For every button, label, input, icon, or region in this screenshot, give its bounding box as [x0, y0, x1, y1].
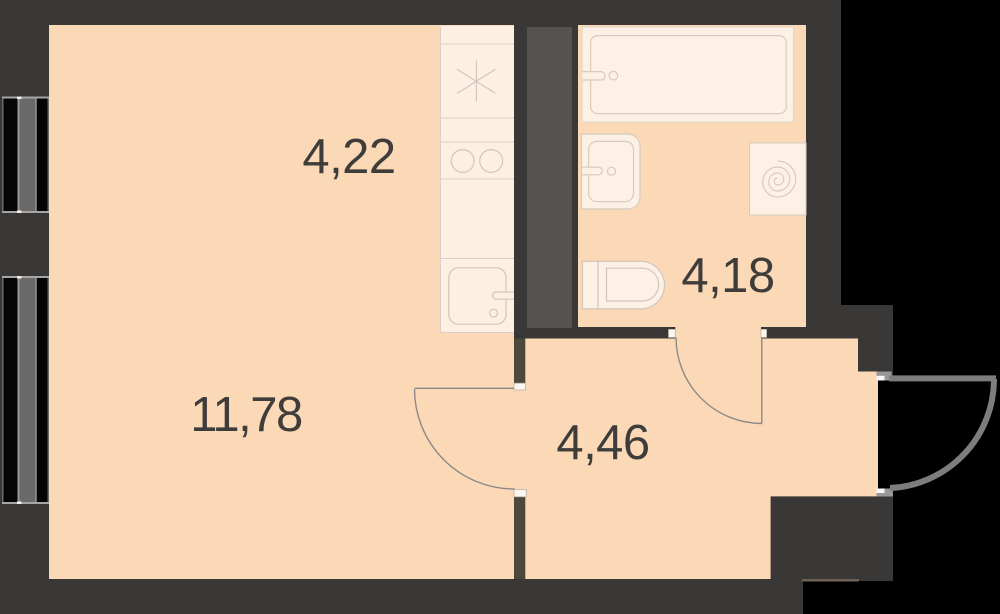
svg-text:4,46: 4,46 — [556, 416, 649, 470]
svg-text:4,18: 4,18 — [681, 249, 774, 303]
svg-text:11,78: 11,78 — [190, 388, 302, 442]
svg-text:4,22: 4,22 — [302, 130, 395, 184]
